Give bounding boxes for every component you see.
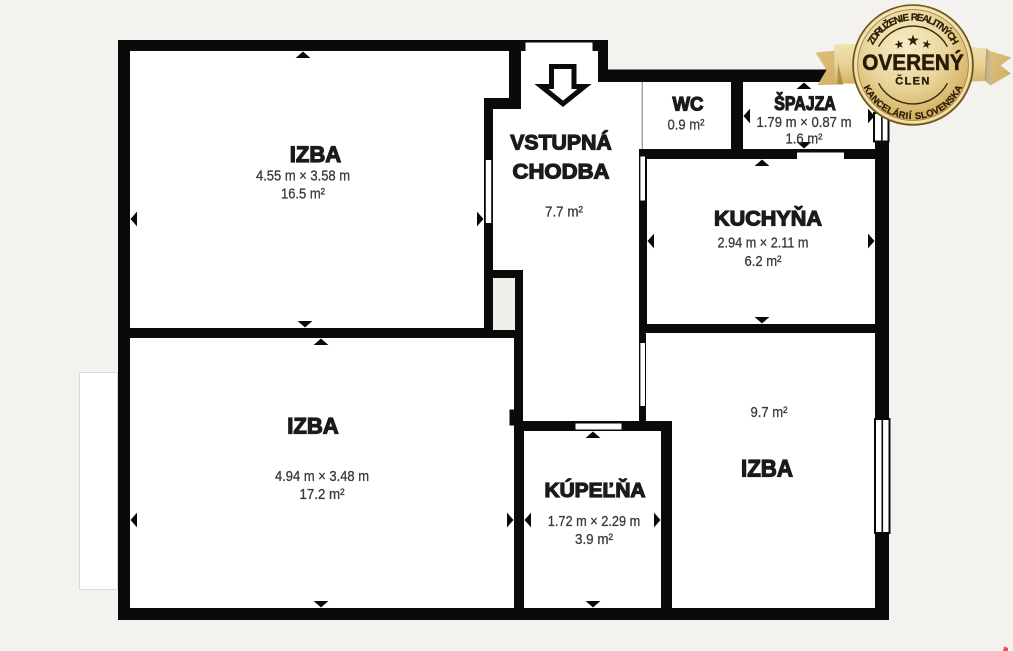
svg-text:4.94 m × 3.48 m: 4.94 m × 3.48 m <box>275 468 369 485</box>
svg-text:3.9 m²: 3.9 m² <box>575 531 613 548</box>
svg-text:IZBA: IZBA <box>287 414 339 439</box>
svg-text:1.72 m × 2.29 m: 1.72 m × 2.29 m <box>548 513 641 530</box>
svg-text:0.9 m²: 0.9 m² <box>668 117 705 134</box>
svg-text:KÚPEĽŇA: KÚPEĽŇA <box>545 478 646 502</box>
svg-text:1.6 m²: 1.6 m² <box>786 132 823 148</box>
svg-text:4.55 m × 3.58 m: 4.55 m × 3.58 m <box>256 168 350 185</box>
svg-text:17.2 m²: 17.2 m² <box>300 486 345 503</box>
svg-text:1.79 m × 0.87 m: 1.79 m × 0.87 m <box>757 115 852 131</box>
svg-text:IZBA: IZBA <box>290 142 342 167</box>
svg-text:7.7 m²: 7.7 m² <box>545 204 583 221</box>
svg-text:WC: WC <box>673 95 704 116</box>
svg-text:CHODBA: CHODBA <box>513 160 610 184</box>
svg-text:6.2 m²: 6.2 m² <box>745 253 782 270</box>
svg-text:KUCHYŇA: KUCHYŇA <box>714 206 822 231</box>
svg-text:OVERENÝ: OVERENÝ <box>862 50 964 75</box>
svg-text:2.94 m × 2.11 m: 2.94 m × 2.11 m <box>718 235 809 252</box>
svg-text:16.5 m²: 16.5 m² <box>281 186 325 203</box>
svg-text:ŠPAJZA: ŠPAJZA <box>774 93 836 115</box>
svg-text:VSTUPNÁ: VSTUPNÁ <box>510 130 612 155</box>
svg-text:IZBA: IZBA <box>741 456 793 483</box>
svg-text:ČLEN: ČLEN <box>895 75 931 88</box>
svg-text:9.7 m²: 9.7 m² <box>751 404 788 421</box>
